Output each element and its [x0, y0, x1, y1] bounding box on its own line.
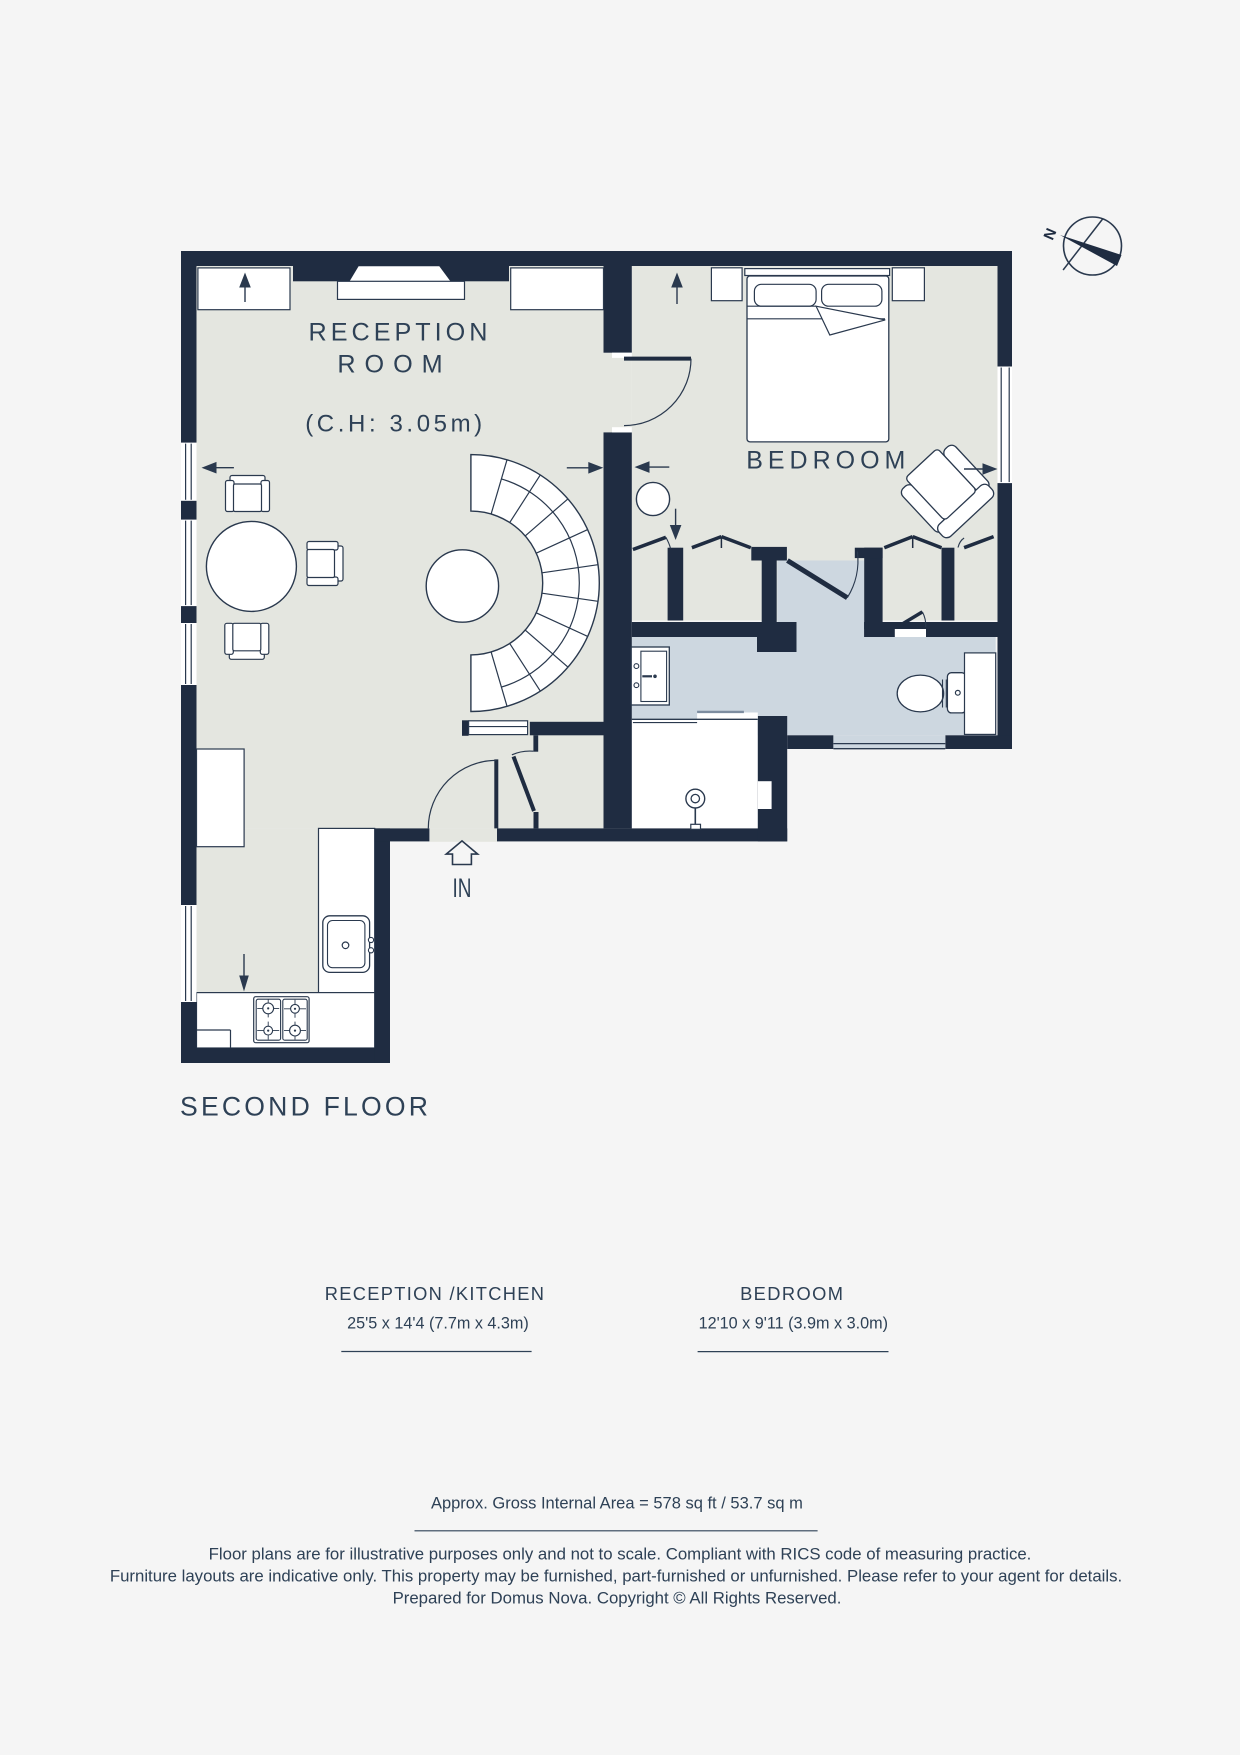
- svg-text:Approx. Gross Internal Area =: Approx. Gross Internal Area = 578 sq ft …: [431, 1495, 803, 1513]
- svg-text:SECOND FLOOR: SECOND FLOOR: [180, 1091, 431, 1121]
- svg-text:RECEPTION /KITCHEN: RECEPTION /KITCHEN: [325, 1283, 545, 1304]
- svg-text:25'5 x 14'4 (7.7m x 4.3m): 25'5 x 14'4 (7.7m x 4.3m): [347, 1315, 529, 1333]
- svg-text:12'10 x 9'11 (3.9m x 3.0m): 12'10 x 9'11 (3.9m x 3.0m): [699, 1315, 888, 1333]
- svg-text:BEDROOM: BEDROOM: [740, 1283, 844, 1304]
- svg-text:ROOM: ROOM: [337, 351, 451, 379]
- svg-text:(C.H: 3.05m): (C.H: 3.05m): [305, 411, 486, 438]
- svg-text:RECEPTION: RECEPTION: [309, 319, 492, 347]
- svg-text:Furniture layouts are indicati: Furniture layouts are indicative only. T…: [110, 1567, 1122, 1586]
- svg-text:IN: IN: [453, 873, 472, 903]
- svg-text:Prepared for Domus Nova. Copyr: Prepared for Domus Nova. Copyright © All…: [393, 1589, 842, 1608]
- svg-text:Floor plans are for illustrati: Floor plans are for illustrative purpose…: [209, 1545, 1032, 1564]
- svg-text:BEDROOM: BEDROOM: [746, 447, 910, 475]
